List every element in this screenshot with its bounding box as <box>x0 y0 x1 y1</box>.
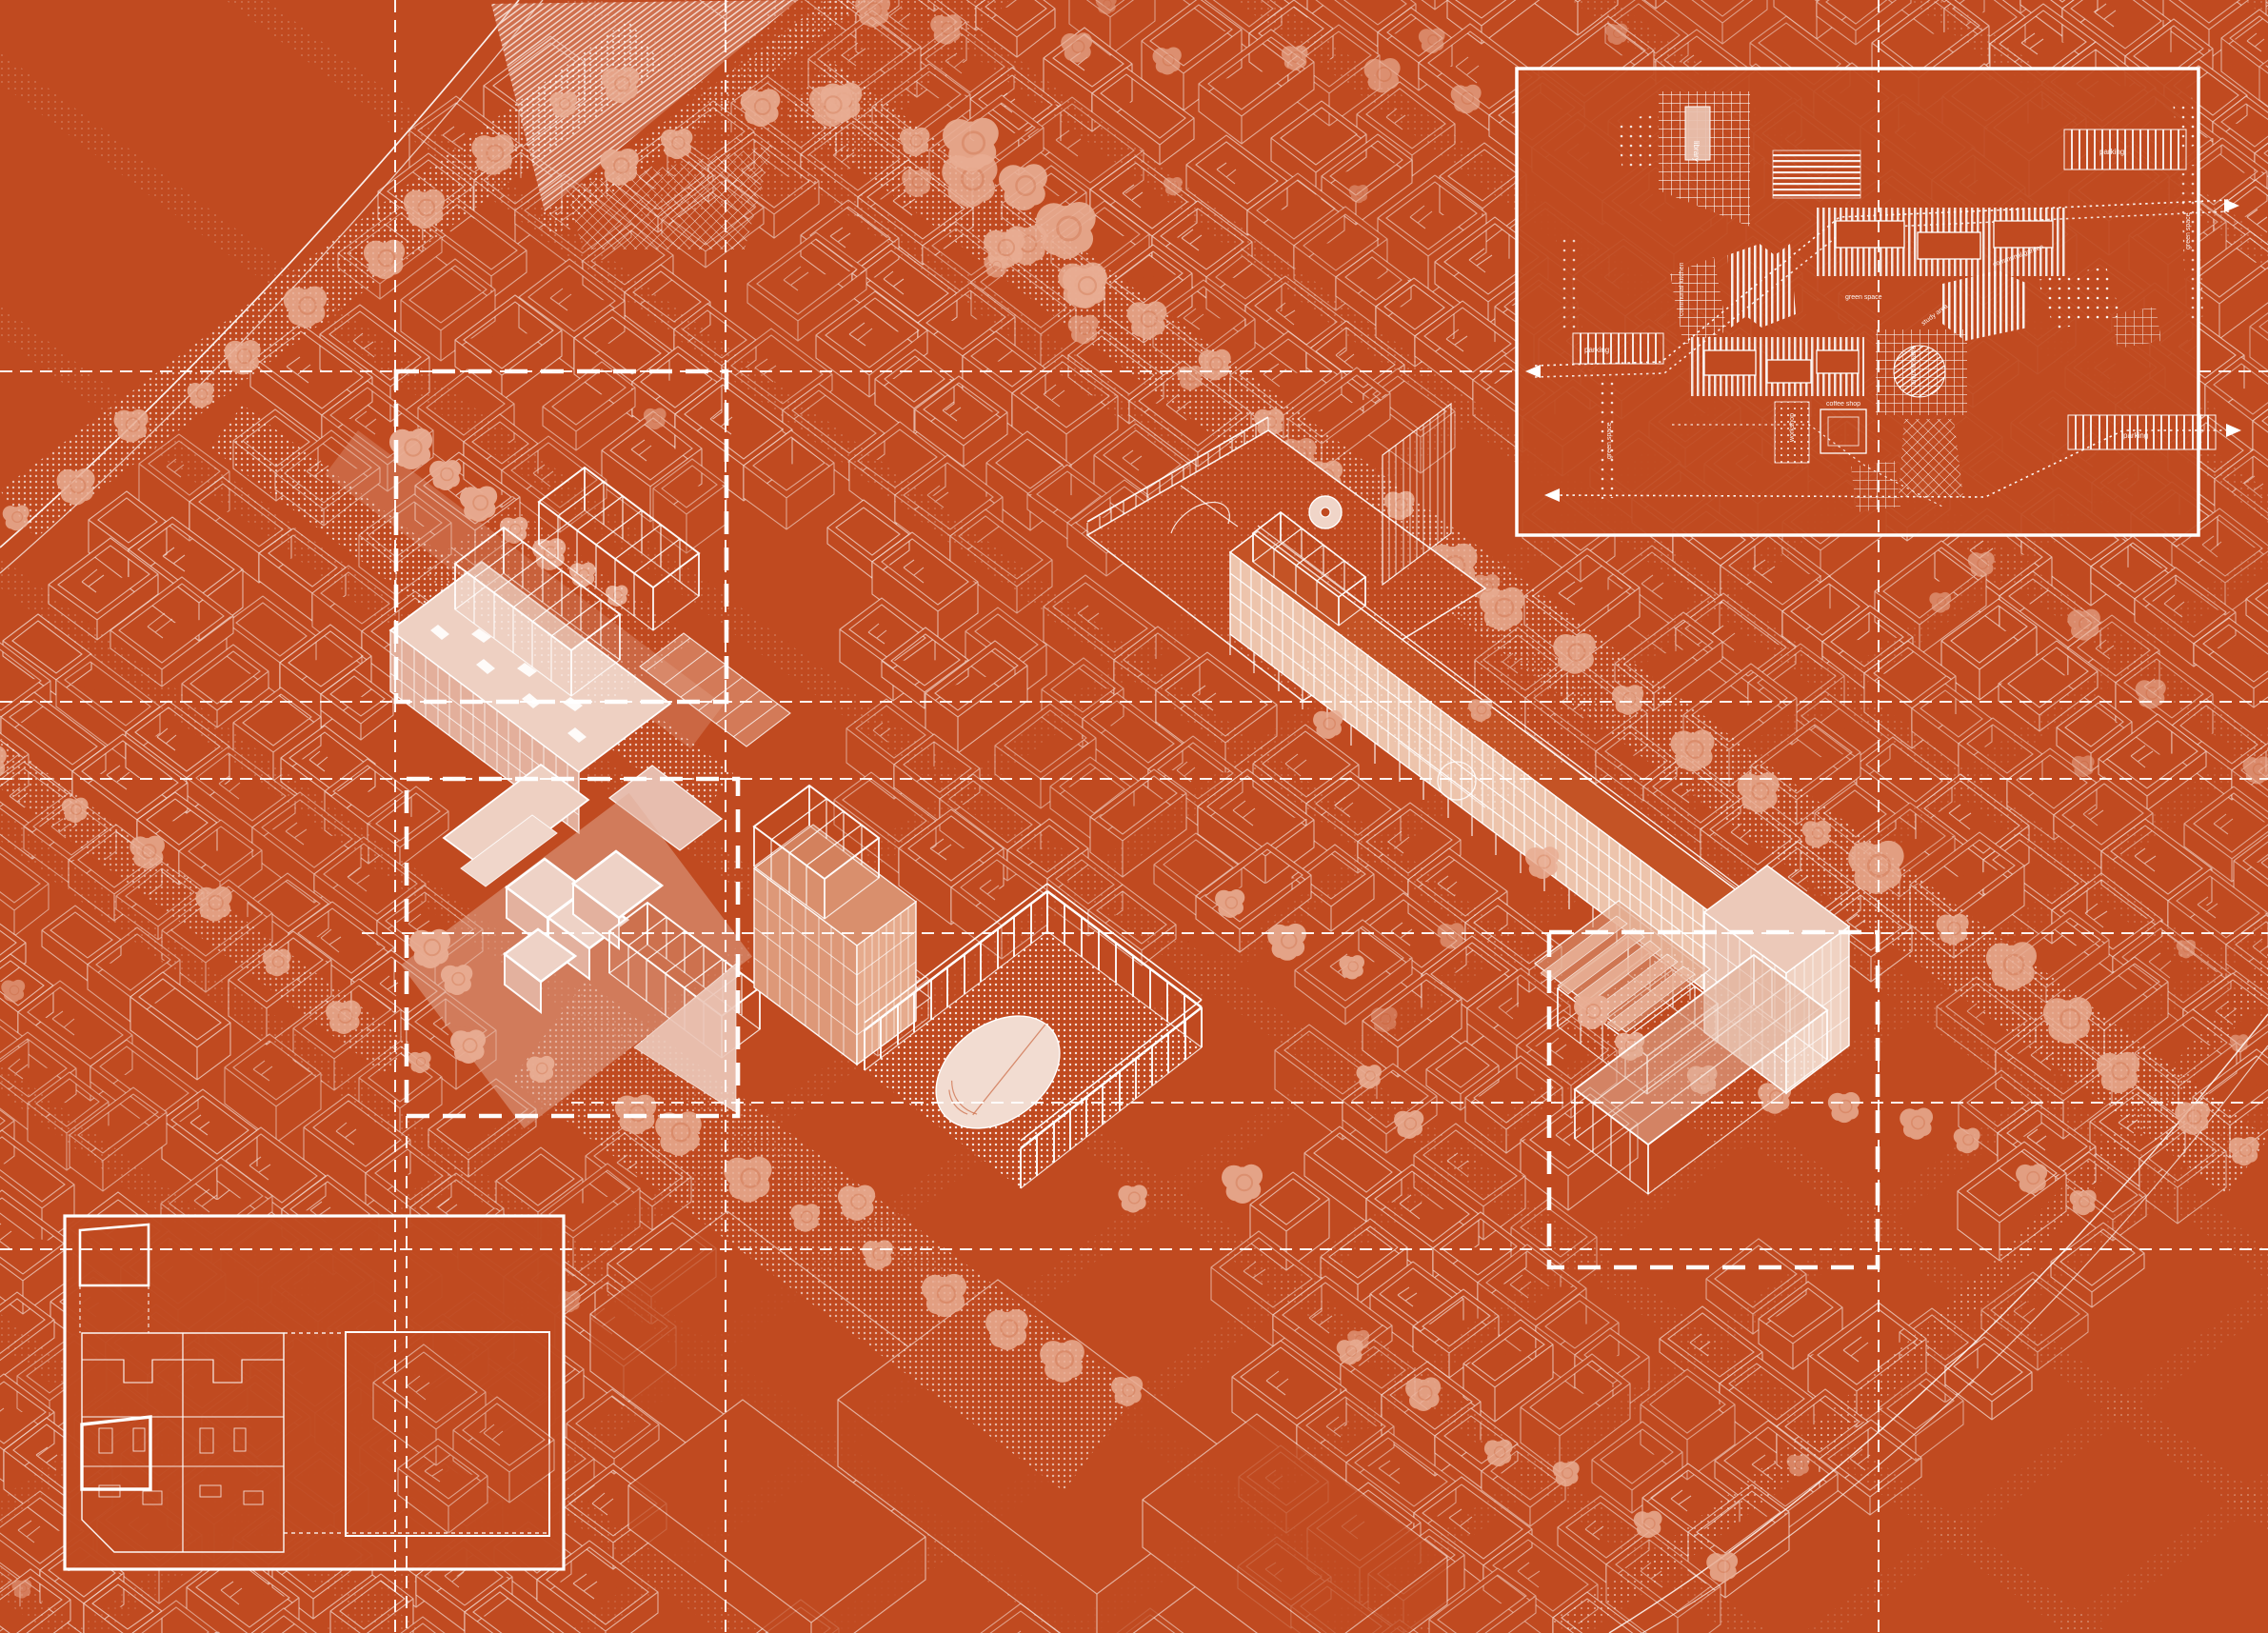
svg-text:parking: parking <box>2123 431 2148 440</box>
svg-text:green space: green space <box>1845 294 1882 301</box>
svg-text:workshop: workshop <box>1789 413 1796 443</box>
svg-text:amphitheatre: amphitheatre <box>1911 346 1918 385</box>
svg-text:parking: parking <box>1584 346 1609 354</box>
svg-text:parking: parking <box>2099 148 2124 156</box>
svg-text:communal kitchen: communal kitchen <box>1679 262 1685 316</box>
svg-text:green space: green space <box>1606 422 1613 459</box>
svg-text:green space: green space <box>2185 212 2192 249</box>
svg-text:library: library <box>1692 141 1701 162</box>
svg-text:coffee shop: coffee shop <box>1826 401 1860 408</box>
